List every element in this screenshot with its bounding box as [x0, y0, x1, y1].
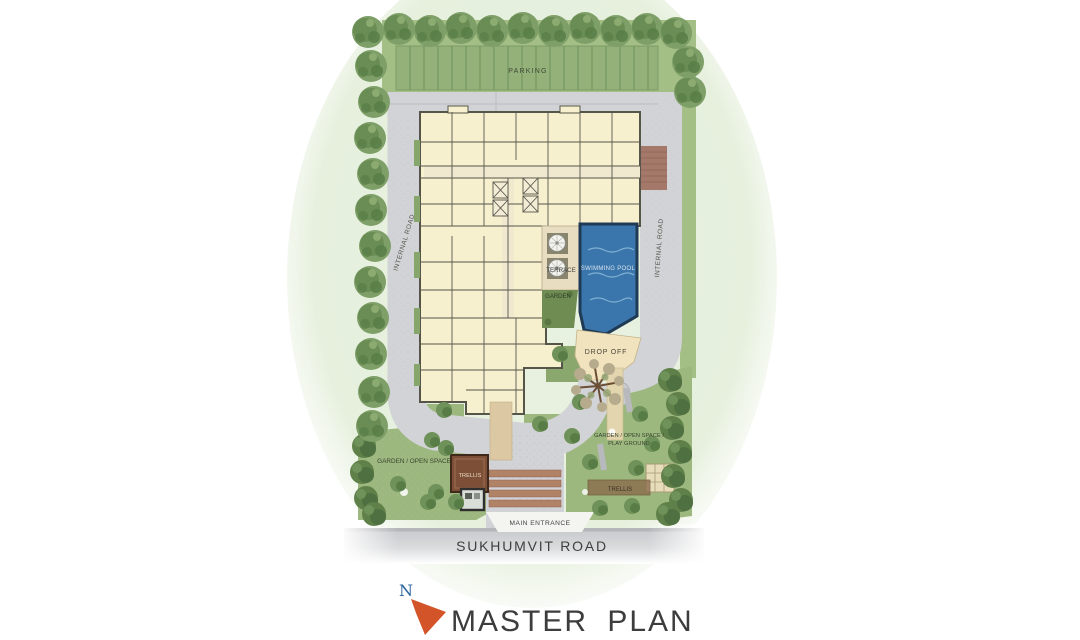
north-label: N: [399, 581, 413, 600]
play-ground-label: PLAY GROUND: [608, 441, 650, 447]
trellis-left-label: TRELLIS: [459, 473, 482, 479]
page-title: MASTER PLAN: [451, 605, 694, 638]
garden-label: GARDEN: [545, 294, 571, 300]
parking-label: PARKING: [508, 68, 547, 75]
master-plan-page: PARKING INTERNAL ROAD INTERNAL ROAD TERR…: [0, 0, 1080, 640]
drop-off-label: DROP OFF: [585, 349, 627, 356]
sukhumvit-road-label: SUKHUMVIT ROAD: [456, 538, 608, 554]
garden-open-space-right-label: GARDEN / OPEN SPACE /: [594, 433, 665, 439]
north-arrow-icon: [411, 599, 446, 635]
garden-open-space-left-label: GARDEN / OPEN SPACE: [377, 458, 451, 465]
swimming-pool-label: SWIMMING POOL: [581, 266, 636, 272]
main-entrance-label: MAIN ENTRANCE: [509, 520, 570, 527]
terrace-area: [542, 226, 580, 290]
terrace-label: TERRACE: [546, 267, 576, 274]
trellis-right-label: TRELLIS: [608, 487, 632, 493]
swimming-pool: [580, 224, 637, 334]
